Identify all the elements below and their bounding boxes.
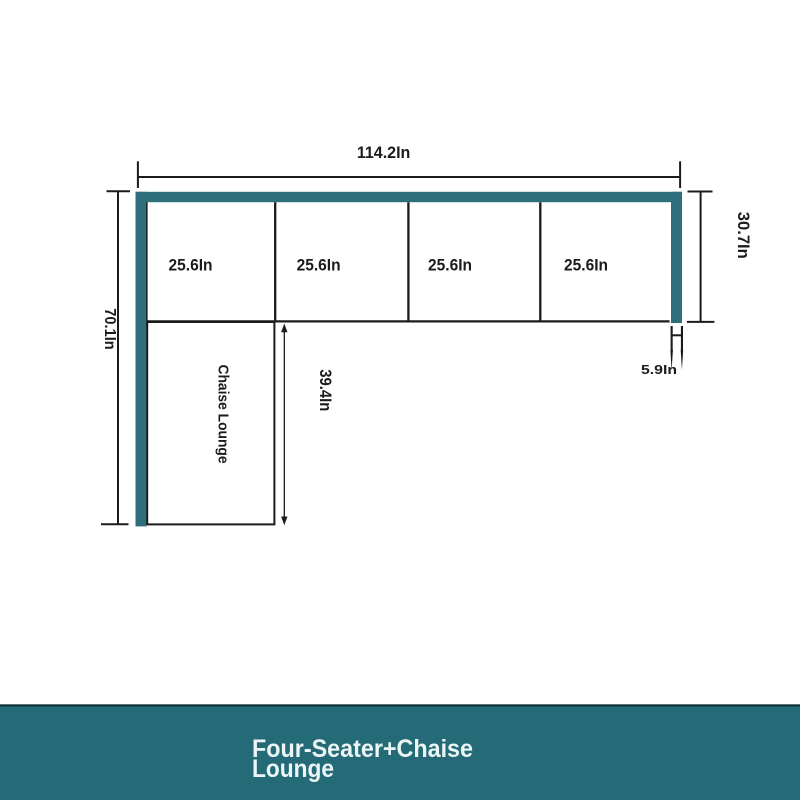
- svg-text:25.6In: 25.6In: [297, 257, 341, 275]
- svg-text:Chaise Lounge: Chaise Lounge: [215, 365, 231, 464]
- svg-text:25.6In: 25.6In: [428, 257, 472, 275]
- svg-text:25.6In: 25.6In: [564, 257, 608, 275]
- svg-text:114.2In: 114.2In: [357, 143, 411, 162]
- svg-text:70.1In: 70.1In: [101, 308, 118, 350]
- svg-text:30.7In: 30.7In: [734, 212, 752, 259]
- svg-text:5.9In: 5.9In: [641, 362, 677, 377]
- svg-text:Lounge: Lounge: [252, 755, 334, 783]
- svg-text:25.6In: 25.6In: [169, 257, 213, 275]
- svg-text:39.4In: 39.4In: [316, 369, 334, 411]
